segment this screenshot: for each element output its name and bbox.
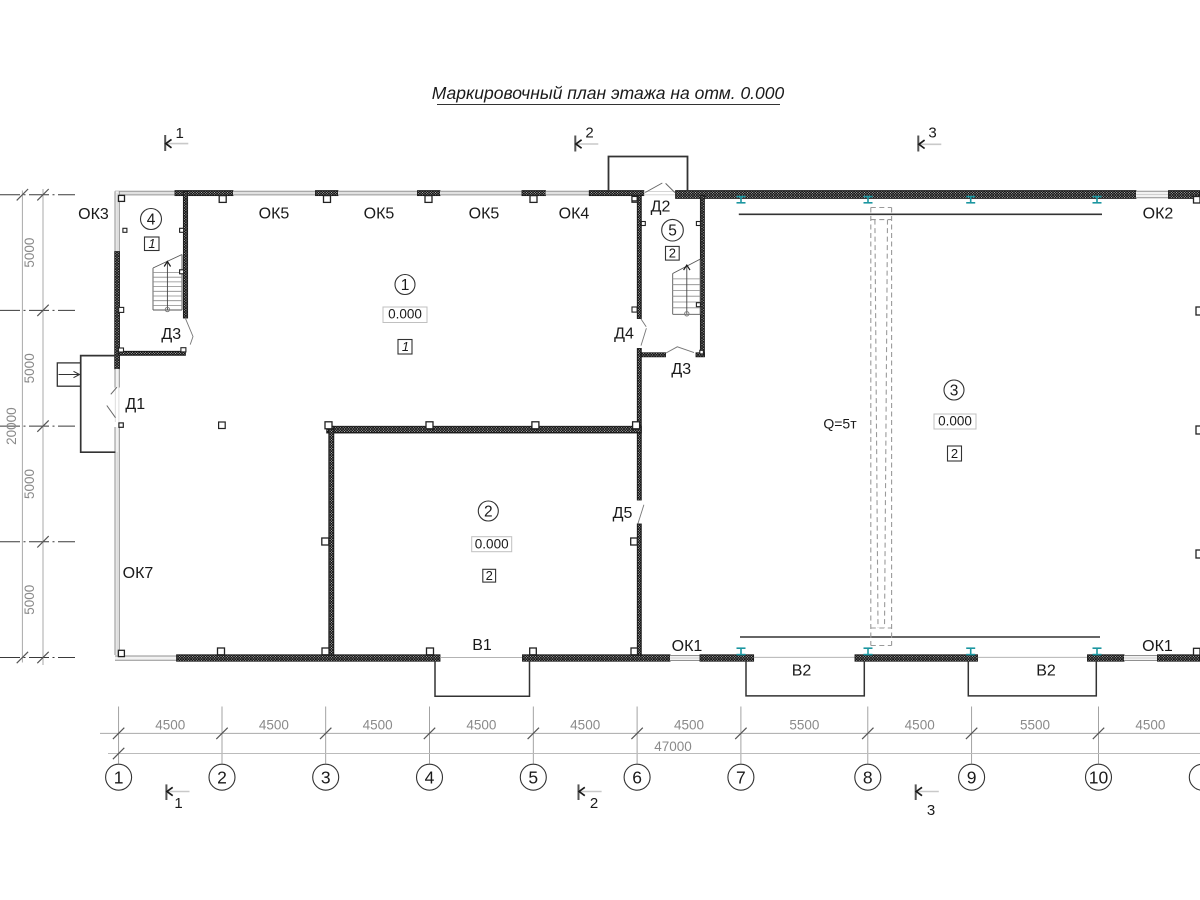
svg-text:5000: 5000 (22, 469, 37, 499)
svg-text:3: 3 (950, 383, 959, 400)
svg-text:ОК2: ОК2 (1143, 206, 1174, 223)
svg-text:4500: 4500 (674, 718, 704, 733)
svg-text:Д3: Д3 (161, 326, 181, 343)
svg-text:Д3: Д3 (671, 361, 691, 378)
svg-text:ОК1: ОК1 (672, 638, 703, 655)
svg-text:0.000: 0.000 (475, 536, 509, 551)
svg-text:4500: 4500 (155, 718, 185, 733)
svg-text:3: 3 (928, 125, 936, 142)
svg-text:2: 2 (484, 504, 493, 521)
svg-text:0.000: 0.000 (938, 414, 972, 429)
svg-text:2: 2 (585, 125, 593, 142)
svg-text:2: 2 (486, 568, 493, 583)
svg-text:4500: 4500 (259, 718, 289, 733)
svg-text:4500: 4500 (905, 718, 935, 733)
svg-text:Д2: Д2 (651, 199, 671, 216)
svg-text:Д4: Д4 (614, 326, 634, 343)
svg-text:4: 4 (425, 767, 435, 787)
svg-text:8: 8 (863, 767, 873, 787)
svg-text:4500: 4500 (466, 718, 496, 733)
svg-text:ОК4: ОК4 (559, 206, 590, 223)
svg-text:4500: 4500 (570, 718, 600, 733)
svg-text:5000: 5000 (22, 353, 37, 383)
svg-text:5: 5 (668, 223, 677, 240)
svg-text:2: 2 (217, 767, 227, 787)
svg-text:7: 7 (736, 767, 746, 787)
svg-text:5500: 5500 (789, 718, 819, 733)
svg-text:ОК5: ОК5 (469, 206, 500, 223)
svg-text:0.000: 0.000 (388, 307, 422, 322)
svg-text:1: 1 (148, 236, 155, 251)
svg-text:5000: 5000 (22, 585, 37, 615)
svg-text:2: 2 (669, 246, 676, 261)
svg-text:ОК1: ОК1 (1142, 638, 1173, 655)
svg-text:В2: В2 (792, 663, 812, 680)
svg-text:5500: 5500 (1020, 718, 1050, 733)
svg-text:4500: 4500 (363, 718, 393, 733)
svg-text:ОК5: ОК5 (259, 206, 290, 223)
svg-text:Д1: Д1 (125, 396, 145, 413)
svg-text:5000: 5000 (22, 238, 37, 268)
svg-text:47000: 47000 (654, 739, 692, 754)
svg-text:2: 2 (951, 446, 958, 461)
svg-text:6: 6 (632, 767, 642, 787)
svg-text:1: 1 (402, 339, 409, 354)
svg-text:В2: В2 (1036, 663, 1056, 680)
svg-text:ОК3: ОК3 (78, 206, 109, 223)
svg-text:1: 1 (401, 277, 410, 294)
svg-text:Д5: Д5 (613, 505, 633, 522)
svg-text:5: 5 (528, 767, 538, 787)
svg-text:1: 1 (114, 767, 124, 787)
svg-text:4500: 4500 (1135, 718, 1165, 733)
svg-text:10: 10 (1089, 767, 1109, 787)
svg-text:2: 2 (590, 795, 598, 812)
svg-text:4: 4 (147, 212, 156, 229)
svg-text:В1: В1 (472, 637, 492, 654)
svg-text:20000: 20000 (4, 407, 19, 445)
svg-text:Q=5т: Q=5т (823, 416, 857, 432)
svg-text:3: 3 (927, 802, 935, 819)
svg-text:ОК5: ОК5 (364, 206, 395, 223)
svg-text:Маркировочный план этажа на от: Маркировочный план этажа на отм. 0.000 (432, 83, 785, 103)
svg-text:ОК7: ОК7 (123, 565, 154, 582)
svg-text:9: 9 (967, 767, 977, 787)
svg-text:1: 1 (174, 795, 182, 812)
svg-text:1: 1 (176, 125, 184, 142)
svg-text:3: 3 (321, 767, 331, 787)
